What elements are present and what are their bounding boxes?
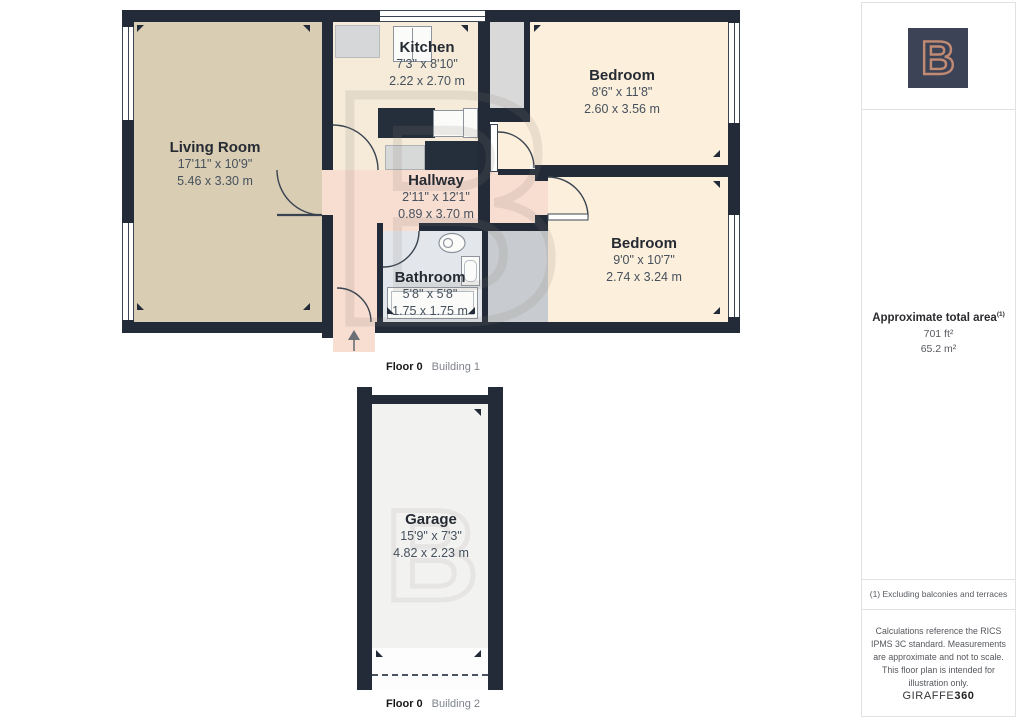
label-kitchen: Kitchen 7'3" x 8'10" 2.22 x 2.70 m [389, 39, 465, 89]
hallway-strip2 [498, 175, 535, 223]
dimension-arrow [474, 409, 481, 416]
footnote-ref: (1) [997, 311, 1005, 318]
wall-bath-left [377, 231, 383, 322]
dimension-arrow [534, 25, 541, 32]
wall-recess-cap [483, 108, 530, 122]
wall-bath-right [482, 231, 488, 322]
wall-living-right-lower [322, 215, 333, 322]
dimension-arrow [713, 307, 720, 314]
dimension-arrow [474, 650, 481, 657]
label-garage: Garage 15'9" x 7'3" 4.82 x 2.23 m [393, 511, 469, 561]
wall-recess-right [524, 22, 530, 122]
window-living-left-2 [122, 223, 134, 320]
label-hallway: Hallway 2'11" x 12'1" 0.89 x 3.70 m [398, 172, 474, 222]
total-area-imperial: 701 ft² [862, 327, 1015, 342]
wall-living-right-upper [322, 22, 333, 170]
wall-bottom [122, 322, 740, 333]
wall-bedroom-divider [535, 165, 740, 177]
window-bedroom1-right [728, 23, 740, 123]
label-bedroom-1: Bedroom 8'6" x 11'8" 2.60 x 3.56 m [584, 67, 660, 117]
window-kitchen-top [380, 10, 485, 22]
garage-door-zone [372, 648, 488, 690]
label-living-room: Living Room 17'11" x 10'9" 5.46 x 3.30 m [170, 139, 261, 189]
dimension-arrow [303, 25, 310, 32]
footnote-text: (1) Excluding balconies and terraces [866, 589, 1011, 599]
entry-door-gap [333, 322, 375, 352]
stove [433, 110, 464, 137]
kitchen-counter-1 [378, 108, 435, 138]
sidebar-divider-3 [862, 609, 1015, 610]
kitchen-counter-3 [425, 141, 478, 170]
wall-kitchen-right [478, 22, 490, 223]
bathroom-door-gap [383, 223, 419, 231]
info-sidebar: B Approximate total area(1) 701 ft² 65.2… [861, 2, 1016, 717]
window-bedroom2-right [728, 215, 740, 317]
hallway-strip [490, 170, 498, 223]
garage-wall-top [372, 395, 488, 404]
total-area-title: Approximate total area(1) [862, 311, 1015, 324]
bedroom2-door-gap [535, 181, 548, 215]
wall-bath-closet-top [419, 223, 548, 231]
dimension-arrow [468, 307, 475, 314]
sidebar-divider-2 [862, 579, 1015, 580]
total-area-block: Approximate total area(1) 701 ft² 65.2 m… [862, 311, 1015, 357]
dimension-arrow [713, 181, 720, 188]
sidebar-divider-1 [862, 109, 1015, 110]
fridge-unit [335, 25, 380, 58]
label-bedroom-2: Bedroom 9'0" x 10'7" 2.74 x 3.24 m [606, 235, 682, 285]
brand-logo-icon: B [908, 28, 968, 88]
window-living-left-1 [122, 27, 134, 120]
kitchen-unit [463, 108, 478, 138]
closet-floor [488, 231, 548, 322]
bedroom1-door-leaf [490, 124, 498, 172]
brand-suffix: 360 [954, 690, 974, 702]
dimension-arrow [461, 25, 468, 32]
dimension-arrow [303, 303, 310, 310]
living-door-gap [322, 170, 333, 215]
wall-divider-thin [498, 169, 535, 175]
svg-text:B: B [921, 31, 955, 84]
entry-porch-right [375, 322, 385, 333]
kitchen-counter-2 [385, 145, 425, 170]
garage-door-dashed [372, 674, 488, 676]
caption-building-2: Floor 0Building 2 [386, 698, 480, 710]
garage-wall-left [357, 387, 372, 690]
dimension-arrow [713, 150, 720, 157]
brand-wordmark: GIRAFFE360 [862, 690, 1015, 702]
garage-wall-right [488, 387, 503, 690]
entry-porch-left [322, 322, 333, 338]
bedroom1-door-nook [498, 122, 530, 169]
caption-building-1: Floor 0Building 1 [386, 361, 480, 373]
hallway-entry [333, 223, 377, 322]
floorplan-page: B B Living Room 17'11" x 10'9" 5.46 x 3.… [0, 0, 1020, 721]
dimension-arrow [137, 25, 144, 32]
dimension-arrow [137, 303, 144, 310]
total-area-metric: 65.2 m² [862, 342, 1015, 357]
brand-name: GIRAFFE [902, 690, 954, 702]
disclaimer-text: Calculations reference the RICS IPMS 3C … [865, 625, 1012, 690]
brand-logo: B [908, 28, 968, 88]
dimension-arrow [376, 650, 383, 657]
label-bathroom: Bathroom 5'8" x 5'8" 1.75 x 1.75 m [392, 269, 468, 319]
utility-recess [490, 22, 524, 108]
